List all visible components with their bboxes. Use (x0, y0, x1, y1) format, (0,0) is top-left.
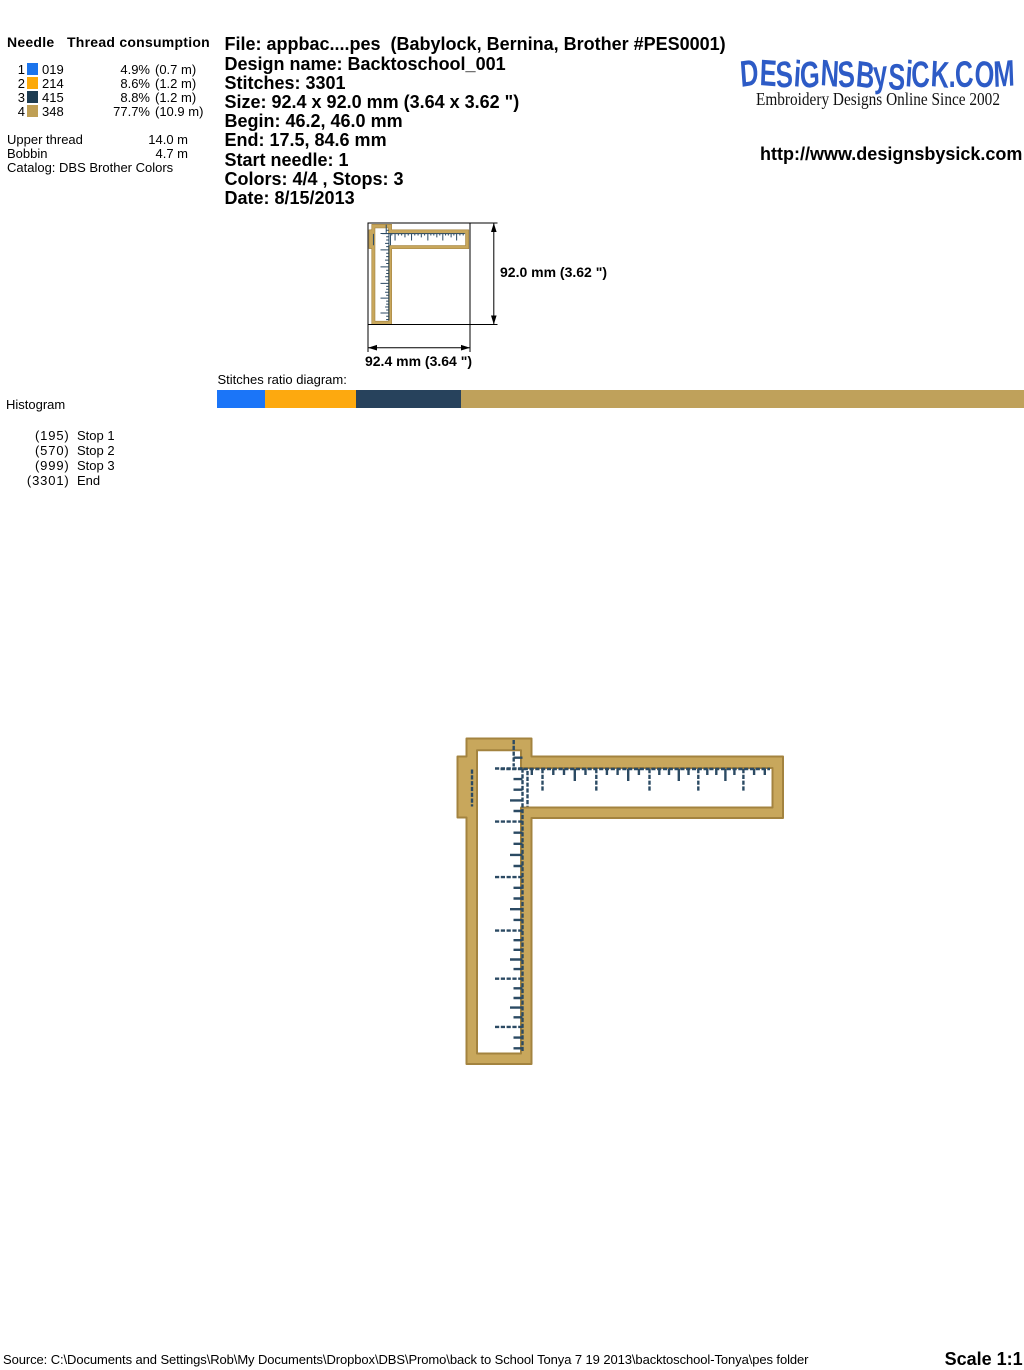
svg-text:Embroidery Designs Online Sinc: Embroidery Designs Online Since 2002 (756, 89, 1000, 109)
